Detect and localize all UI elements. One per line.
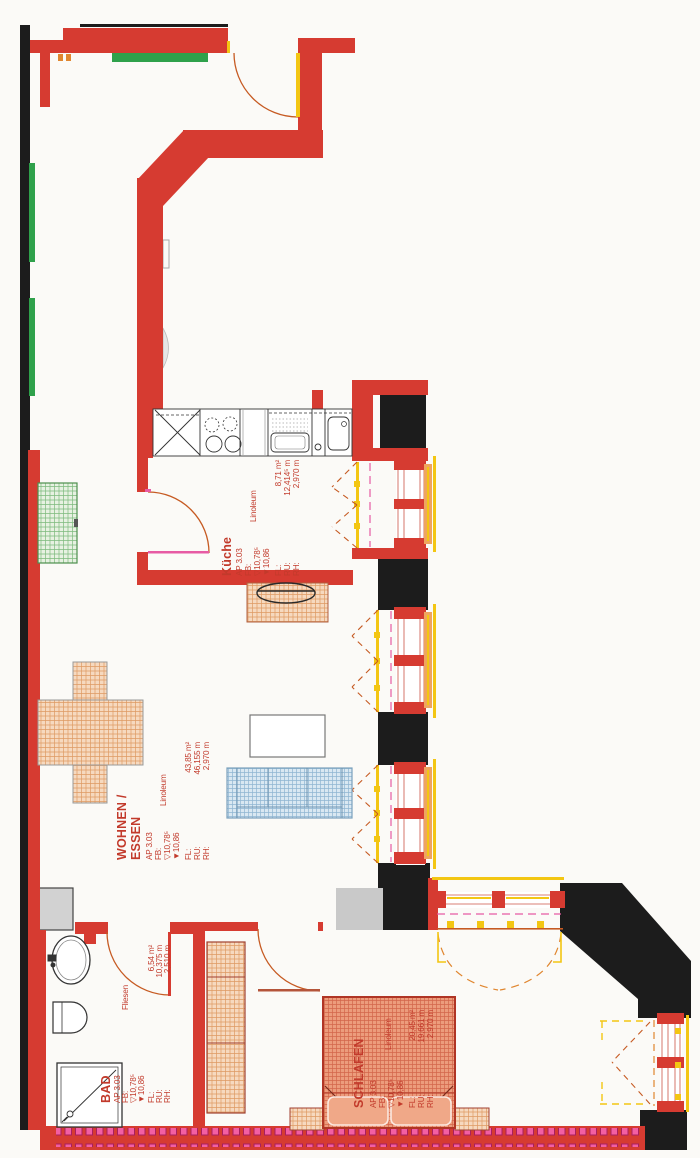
window-outer-line <box>432 877 564 880</box>
kitchen-door-leaf <box>148 551 209 554</box>
window-outer-line <box>433 759 436 869</box>
room-fb-upper: ▽10,78⁵ <box>163 831 172 860</box>
room-material: Linoleum <box>384 1018 393 1050</box>
room-fb-label: FB: <box>378 1096 387 1108</box>
window-glazing-line <box>427 770 429 856</box>
window-cap <box>394 538 426 549</box>
room-fb-label: FB: <box>244 564 253 576</box>
green-marking <box>112 53 208 62</box>
wall-segment <box>28 930 46 1130</box>
room-ap: AP 3.03 <box>235 548 244 576</box>
washbasin-tap <box>48 955 56 961</box>
wall-segment <box>380 395 426 448</box>
window-tick <box>477 921 484 928</box>
nightstand <box>455 1108 489 1130</box>
window-cap <box>657 1013 684 1024</box>
orange-mark <box>66 54 71 61</box>
bedroom-door-leaf <box>258 989 320 992</box>
floor-plan-page: Küche AP 3.03 FB: ▽10,78⁵ ▼10,86 Linoleu… <box>0 0 700 1158</box>
nightstand <box>290 1108 324 1130</box>
door-jamb <box>318 922 323 931</box>
green-marking <box>29 298 35 396</box>
threshold-line <box>437 928 563 930</box>
window-cap <box>394 459 426 470</box>
room-ru-label: RU: <box>193 846 202 860</box>
room-name: SCHLAFEN <box>352 1038 366 1108</box>
room-fl-label: FL: <box>408 1097 417 1108</box>
wall-segment <box>378 559 428 610</box>
room-material: Linoleum <box>249 490 258 522</box>
window-glazing-line <box>427 467 429 541</box>
room-ru-label: RU: <box>417 1094 426 1108</box>
window-cap <box>394 607 426 619</box>
green-marking <box>29 163 35 262</box>
wall-hatch-band <box>56 1128 642 1147</box>
room-fb-upper: ▽10,78⁵ <box>387 1079 396 1108</box>
door-jamb-mark <box>145 489 151 492</box>
window-cap <box>492 891 505 908</box>
room-fl-label: FL: <box>184 849 193 860</box>
window-cap <box>657 1101 684 1112</box>
room-material: Linoleum <box>159 774 168 806</box>
window-cap <box>394 499 426 509</box>
dining-table <box>38 700 143 765</box>
room-fb-label: FB: <box>154 848 163 860</box>
counter-outline <box>153 409 352 456</box>
wall-segment <box>63 28 228 53</box>
window-tick <box>507 921 514 928</box>
washbasin-drain <box>51 963 55 967</box>
floor-plan-drawing: Küche AP 3.03 FB: ▽10,78⁵ ▼10,86 Linoleu… <box>0 0 700 1158</box>
dining-chair <box>73 765 107 803</box>
room-ap: AP 3.03 <box>145 832 154 860</box>
window-tick <box>374 685 380 691</box>
room-ru-value: 12,414⁵ m <box>283 460 292 496</box>
window-outer-line <box>686 1015 689 1112</box>
window-cap <box>394 762 426 774</box>
door-jamb-mark <box>227 41 230 53</box>
room-material: Fliesen <box>121 984 130 1010</box>
room-rh-value: 2,970 m <box>292 460 301 489</box>
window-glazing-line <box>447 897 491 899</box>
room-rh-value: 2,510 m <box>163 945 172 974</box>
window-sill-wall <box>352 548 428 559</box>
window-tick <box>354 523 360 529</box>
coffee-table <box>250 715 325 757</box>
wall-segment <box>205 922 258 931</box>
entrance-door-leaf <box>296 53 300 117</box>
window-outer-line <box>433 604 436 718</box>
wall-segment-gray <box>336 888 383 930</box>
window-tick <box>374 786 380 792</box>
room-fb-lower: ▼10,86 <box>137 1075 146 1103</box>
orange-mark <box>58 54 63 61</box>
wall-segment-gray <box>35 888 73 930</box>
cabinet-handle <box>74 519 78 527</box>
window-tick <box>675 1062 681 1068</box>
shower-drain <box>67 1111 73 1117</box>
room-ru-label: RU: <box>283 562 292 576</box>
room-fl-label: FL: <box>274 565 283 576</box>
room-fb-lower: ▼10,86 <box>172 832 181 860</box>
window-tick <box>354 481 360 487</box>
toilet <box>53 1002 87 1033</box>
window-tick <box>374 836 380 842</box>
room-rh-label: RH: <box>292 562 301 576</box>
wall-segment <box>137 458 148 492</box>
wall-segment <box>373 380 428 395</box>
window-tick <box>675 1028 681 1034</box>
window-cap <box>394 808 426 819</box>
dining-chair <box>73 662 107 700</box>
room-fb-lower: ▼10,86 <box>262 548 271 576</box>
room-fb-upper: ▽10,78⁵ <box>253 547 262 576</box>
window-cap <box>433 891 446 908</box>
window-cap <box>550 891 565 908</box>
wall-segment <box>137 178 163 414</box>
wall-segment <box>80 24 228 27</box>
wall-segment <box>298 38 322 130</box>
wardrobe <box>207 942 245 1113</box>
wall-segment <box>640 1110 687 1150</box>
wall-segment <box>378 863 430 930</box>
wall-segment <box>193 922 205 1128</box>
room-fl-value: 8,71 m² <box>274 460 283 487</box>
kitchen-counter <box>153 409 352 456</box>
room-name: BAD <box>99 1075 113 1103</box>
room-fb-lower: ▼10,86 <box>396 1080 405 1108</box>
window-tick <box>374 632 380 638</box>
window-glazing-line <box>506 897 549 899</box>
wall-segment <box>170 922 193 934</box>
room-ru-value: 19,661 m <box>417 1010 426 1043</box>
room-ap: AP 3.03 <box>369 1080 378 1108</box>
room-name: WOHNEN / <box>115 794 129 860</box>
wall-segment <box>137 414 153 458</box>
wall-nib <box>84 934 96 944</box>
window-tick <box>537 921 544 928</box>
window-tick <box>675 1094 681 1100</box>
room-rh-value: 2,970 m <box>426 1010 435 1039</box>
room-rh-value: 2,970 m <box>202 742 211 771</box>
window-glazing-line <box>427 615 429 705</box>
wall-segment <box>75 922 108 934</box>
room-rh-label: RH: <box>202 846 211 860</box>
room-rh-label: RH: <box>426 1094 435 1108</box>
room-name: ESSEN <box>129 817 143 860</box>
window-cap <box>394 655 426 666</box>
wall-segment <box>40 53 50 107</box>
window-tick <box>447 921 454 928</box>
window-outer-line <box>433 456 436 552</box>
room-rh-label: RH: <box>163 1089 172 1103</box>
window-cap <box>394 702 426 714</box>
room-fl-value: 43,85 m² <box>184 742 193 773</box>
room-ru-value: 46,155 m <box>193 742 202 775</box>
washbasin-inner <box>56 940 86 980</box>
room-fl-value: 20,45 m² <box>408 1010 417 1041</box>
wall-segment <box>378 712 428 765</box>
cabinet-green <box>38 483 77 563</box>
sofa <box>227 768 352 818</box>
room-name: Küche <box>220 537 234 576</box>
window-cap <box>394 852 426 864</box>
window-tick <box>374 658 380 664</box>
wall-segment <box>352 380 373 450</box>
